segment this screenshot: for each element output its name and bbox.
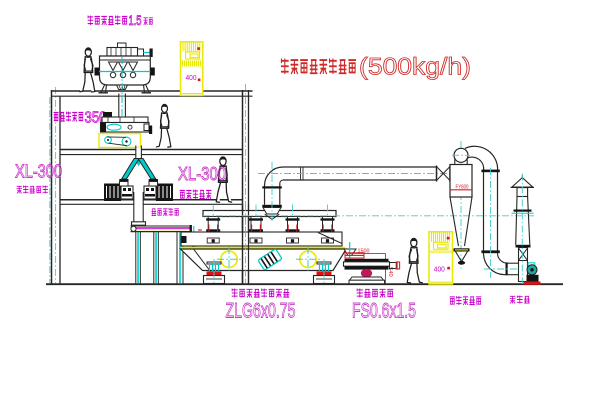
svg-text:XL-300: XL-300	[15, 161, 62, 182]
svg-text:FS0.6x1.5: FS0.6x1.5	[352, 300, 416, 323]
svg-text:ZLG6x0.75: ZLG6x0.75	[226, 300, 296, 323]
svg-text:400: 400	[434, 265, 445, 274]
svg-text:400: 400	[186, 73, 197, 82]
svg-text:(500kg/h): (500kg/h)	[359, 54, 471, 81]
svg-text:1500: 1500	[358, 248, 370, 254]
svg-text:XL-300: XL-300	[178, 163, 226, 184]
svg-text:1.5: 1.5	[129, 13, 142, 28]
